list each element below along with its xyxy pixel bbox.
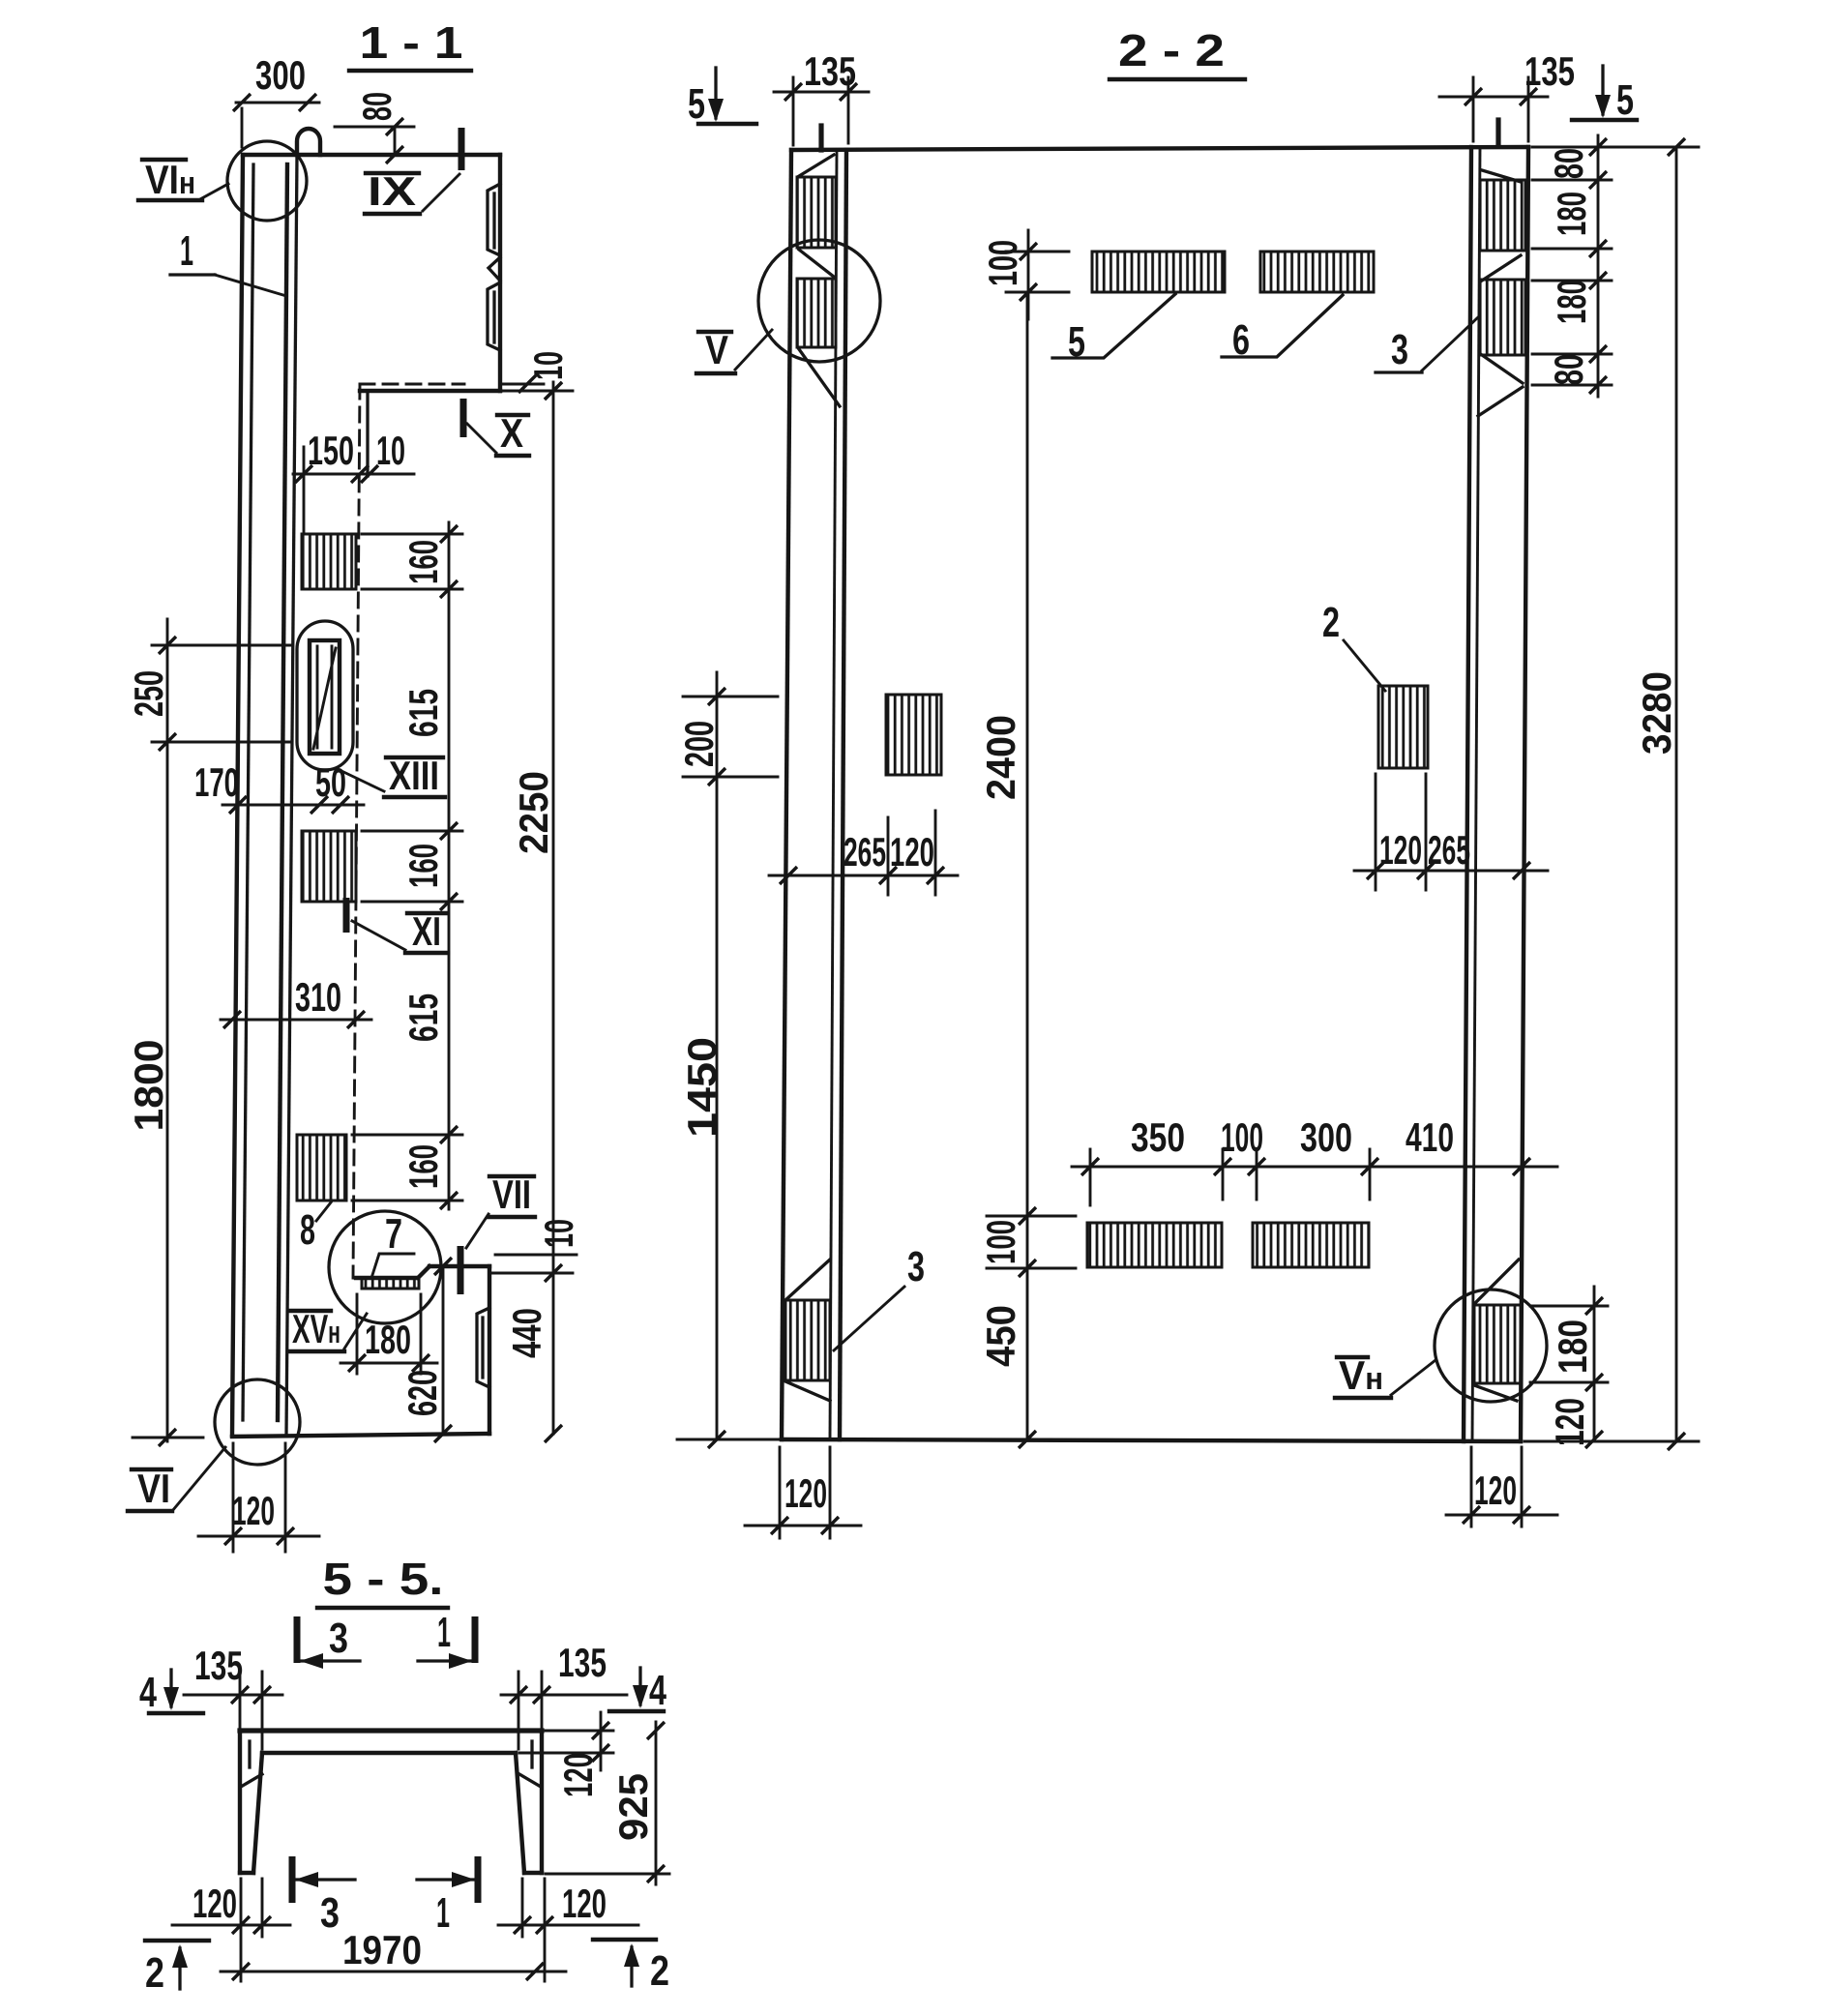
svg-text:80: 80	[1546, 354, 1591, 385]
svg-text:10: 10	[525, 351, 571, 380]
svg-text:10: 10	[536, 1219, 581, 1248]
svg-text:135: 135	[1524, 48, 1575, 94]
svg-text:135: 135	[194, 1643, 243, 1688]
svg-text:V: V	[705, 327, 728, 372]
svg-text:180: 180	[1549, 192, 1594, 236]
svg-text:1800: 1800	[126, 1040, 171, 1132]
svg-text:1: 1	[437, 1609, 451, 1656]
svg-text:XI: XI	[412, 908, 441, 954]
svg-text:VIн: VIн	[145, 157, 195, 202]
svg-text:120: 120	[784, 1470, 827, 1516]
svg-text:300: 300	[255, 52, 306, 98]
svg-text:265: 265	[1428, 827, 1470, 873]
svg-text:120: 120	[1379, 827, 1422, 873]
svg-text:VII: VII	[492, 1171, 531, 1217]
svg-text:1 - 1: 1 - 1	[360, 17, 463, 68]
svg-text:VI: VI	[137, 1466, 170, 1511]
svg-text:310: 310	[295, 974, 341, 1020]
svg-text:8: 8	[300, 1206, 315, 1254]
svg-text:410: 410	[1406, 1114, 1454, 1160]
svg-text:XVн: XVн	[292, 1306, 340, 1351]
svg-text:120: 120	[1474, 1468, 1517, 1513]
svg-text:3: 3	[907, 1243, 925, 1290]
svg-text:160: 160	[400, 844, 446, 888]
svg-text:1450: 1450	[679, 1037, 725, 1138]
svg-text:XIII: XIII	[389, 753, 439, 798]
svg-text:450: 450	[978, 1305, 1023, 1367]
svg-text:120: 120	[562, 1881, 607, 1926]
svg-text:7: 7	[385, 1210, 402, 1258]
svg-text:120: 120	[555, 1753, 601, 1797]
svg-text:1970: 1970	[342, 1927, 422, 1972]
svg-text:50: 50	[315, 759, 346, 805]
svg-text:180: 180	[1550, 1319, 1595, 1374]
svg-text:1: 1	[436, 1889, 450, 1937]
svg-text:170: 170	[194, 759, 239, 805]
svg-text:200: 200	[676, 721, 722, 767]
svg-text:135: 135	[558, 1640, 607, 1685]
svg-text:120: 120	[192, 1881, 237, 1926]
svg-text:5: 5	[1616, 76, 1634, 124]
svg-text:80: 80	[1546, 148, 1591, 179]
svg-text:80: 80	[354, 92, 400, 121]
svg-text:620: 620	[400, 1370, 445, 1416]
svg-text:150: 150	[308, 428, 354, 473]
svg-text:5: 5	[688, 80, 705, 128]
svg-text:160: 160	[400, 1144, 446, 1189]
svg-text:615: 615	[400, 993, 446, 1042]
svg-text:5 - 5.: 5 - 5.	[323, 1554, 444, 1604]
svg-text:2250: 2250	[511, 771, 556, 854]
svg-text:X: X	[500, 410, 523, 456]
svg-text:265: 265	[844, 829, 886, 875]
svg-text:120: 120	[232, 1488, 275, 1533]
svg-text:100: 100	[978, 1220, 1023, 1264]
svg-text:IX: IX	[368, 168, 416, 214]
svg-text:300: 300	[1300, 1114, 1352, 1160]
svg-text:180: 180	[365, 1317, 411, 1362]
svg-text:Vн: Vн	[1339, 1352, 1383, 1398]
svg-text:100: 100	[980, 240, 1025, 286]
svg-text:2: 2	[650, 1947, 669, 1995]
svg-text:2: 2	[1322, 599, 1340, 646]
svg-text:3: 3	[320, 1889, 340, 1937]
svg-text:1: 1	[180, 227, 193, 275]
svg-text:160: 160	[400, 540, 446, 584]
svg-text:3: 3	[1391, 326, 1408, 373]
svg-text:350: 350	[1131, 1114, 1185, 1160]
svg-text:4: 4	[139, 1669, 157, 1716]
svg-text:120: 120	[1547, 1398, 1592, 1446]
svg-text:2400: 2400	[978, 715, 1023, 800]
svg-text:2 - 2: 2 - 2	[1118, 25, 1225, 75]
svg-text:440: 440	[504, 1308, 549, 1358]
svg-text:615: 615	[400, 689, 446, 737]
svg-text:250: 250	[126, 670, 171, 717]
svg-text:3: 3	[329, 1615, 348, 1662]
svg-text:3280: 3280	[1634, 671, 1679, 755]
svg-text:4: 4	[649, 1667, 666, 1714]
svg-text:925: 925	[610, 1773, 656, 1841]
svg-text:10: 10	[376, 428, 405, 473]
svg-text:180: 180	[1549, 280, 1594, 324]
svg-text:2: 2	[145, 1949, 164, 1997]
